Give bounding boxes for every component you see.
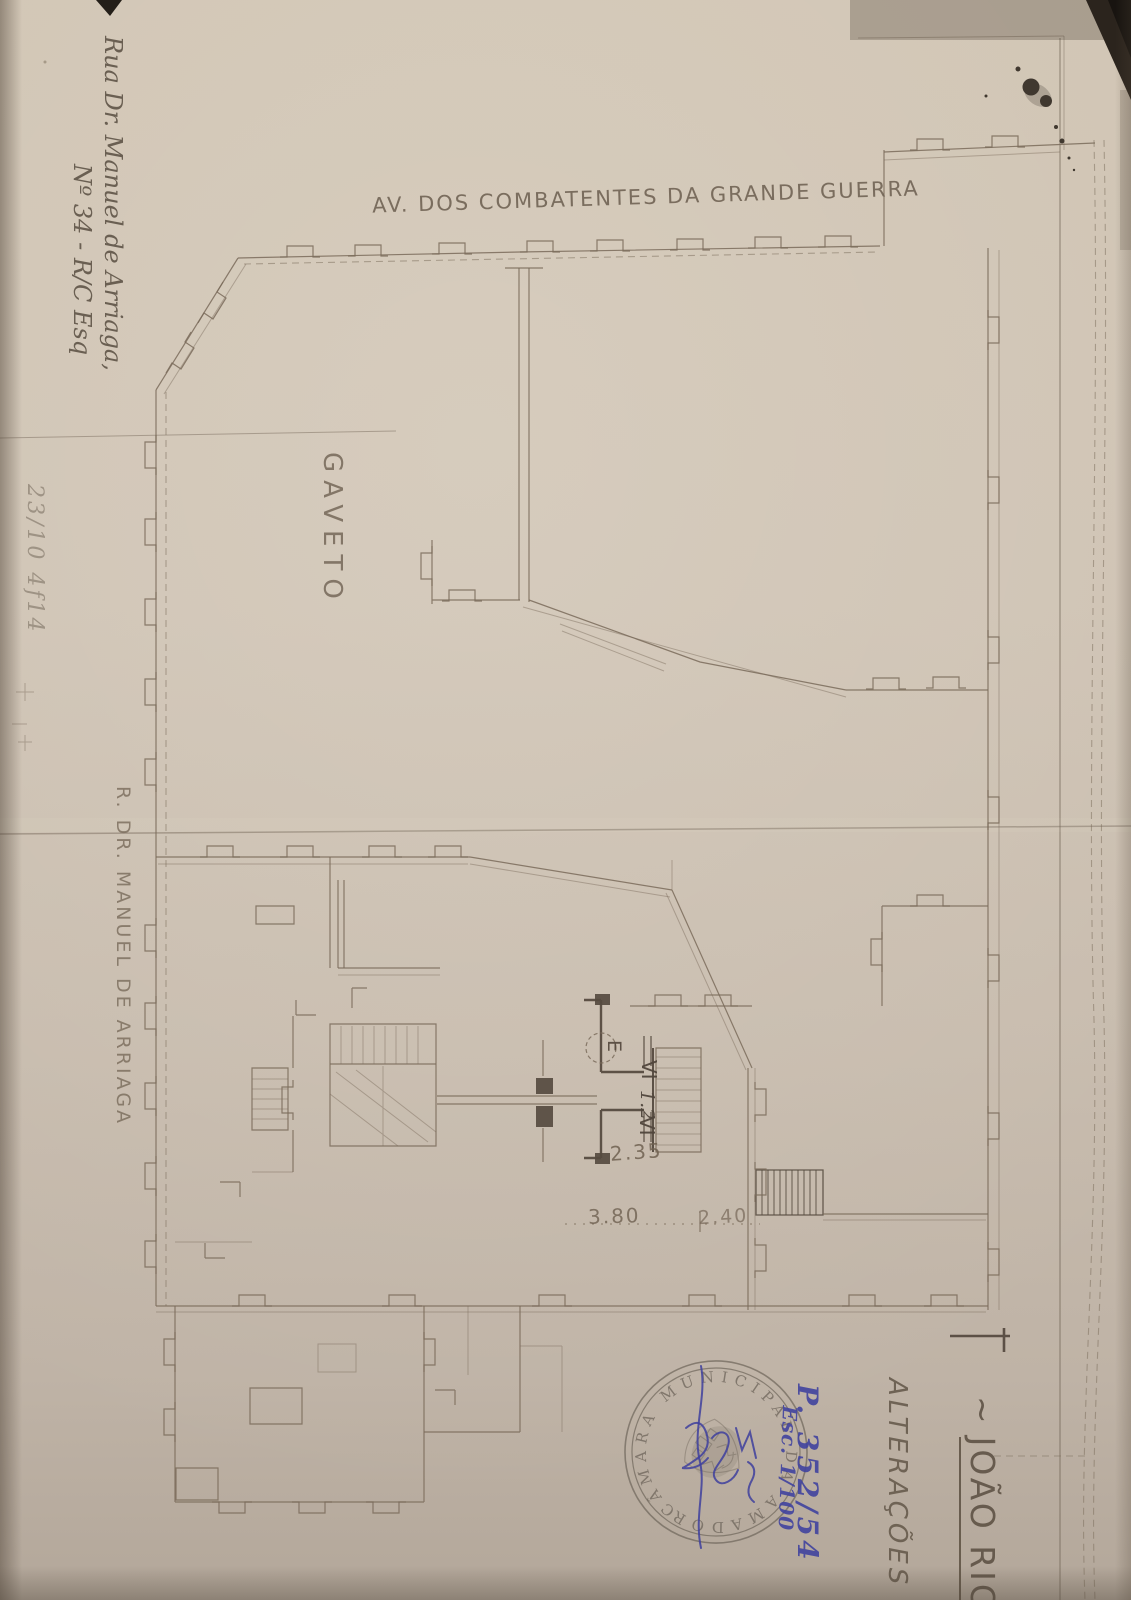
ink-blobs: [985, 67, 1076, 172]
lot-boundary: [145, 236, 999, 1312]
small-staircase-left: [252, 1068, 288, 1130]
dimension-hall: 2.35: [609, 1138, 663, 1166]
subject-label-alteracoes: ALTERAÇÕES ,: [882, 1378, 912, 1600]
address-annotation: Rua Dr. Manuel de Arriaga, Nº 34 - R/C E…: [66, 36, 128, 371]
pencil-date-note: 23/10 4f14: [22, 484, 47, 635]
right-rooms: [565, 895, 1010, 1352]
owner-tilde: ~: [963, 1396, 1002, 1427]
address-line-2: Nº 34 - R/C Esq: [66, 36, 97, 371]
pencil-cross-marks: [12, 61, 47, 752]
scanned-floor-plan-photo: CÂMARA MUNICIPAL DA AMADORA ✶ E AV. DOS …: [0, 0, 1131, 1600]
address-line-1: Rua Dr. Manuel de Arriaga,: [97, 36, 128, 371]
upper-interior-walls: [421, 268, 988, 697]
corner-label-gaveto: GAVETO: [317, 452, 347, 607]
owner-title: ~JOÃO RIC: [963, 1396, 1002, 1600]
street-label-left: R. DR. MANUEL DE ARRIAGA: [112, 786, 134, 1126]
scale-note: Esc. 1/100: [774, 1405, 802, 1531]
floor-plan-drawing: CÂMARA MUNICIPAL DA AMADORA ✶ E: [0, 0, 1131, 1600]
street-curb-lines: [994, 140, 1106, 1600]
dimension-room: 3.80: [588, 1203, 641, 1229]
main-staircase: [330, 1024, 436, 1146]
middle-walls: [156, 846, 752, 1258]
owner-name: JOÃO RIC: [959, 1437, 1002, 1600]
photo-corner-shadows: [96, 0, 1131, 250]
window-label-bottom: VI: [635, 1116, 659, 1136]
entry-core-walls: [437, 994, 651, 1164]
entry-label: E: [603, 1040, 625, 1052]
lower-left-rooms: [164, 1306, 562, 1513]
window-label-top: VI: [637, 1060, 661, 1080]
paper-creases: [0, 38, 1131, 1600]
dimension-stair: 2.40: [697, 1205, 748, 1230]
